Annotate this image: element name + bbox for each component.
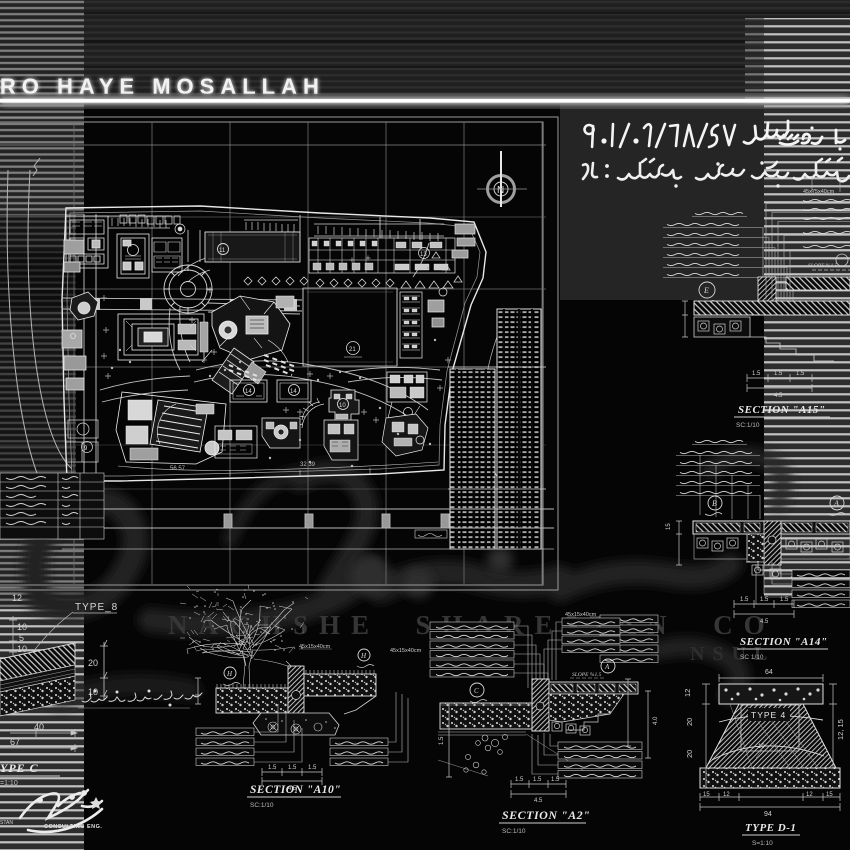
- svg-text:64: 64: [765, 669, 773, 676]
- svg-text:1.5: 1.5: [515, 777, 524, 783]
- svg-text:10: 10: [758, 744, 765, 750]
- svg-text:11: 11: [219, 248, 226, 254]
- svg-text:SC:1/10: SC:1/10: [250, 802, 274, 809]
- svg-text:15: 15: [703, 792, 710, 798]
- svg-text:H: H: [360, 652, 367, 660]
- svg-text:SC:1/10: SC:1/10: [502, 828, 526, 835]
- svg-text:20: 20: [685, 718, 694, 726]
- svg-text:TYPE D-1: TYPE D-1: [745, 822, 796, 834]
- svg-text:21: 21: [349, 347, 356, 353]
- svg-text:20: 20: [685, 750, 694, 758]
- svg-text:1.5: 1.5: [780, 597, 789, 603]
- svg-text:S=1:10: S=1:10: [752, 840, 773, 847]
- svg-text:15: 15: [666, 523, 672, 530]
- svg-text:CONSULTING ENG.: CONSULTING ENG.: [44, 824, 102, 830]
- svg-text:4.5: 4.5: [534, 798, 543, 804]
- svg-text:12: 12: [723, 792, 730, 798]
- svg-text:SLOPE %1.5: SLOPE %1.5: [572, 672, 602, 678]
- svg-text:YPE C: YPE C: [0, 761, 39, 775]
- svg-text:B: B: [712, 499, 717, 508]
- svg-text:4.5: 4.5: [760, 619, 769, 625]
- svg-text:1.5: 1.5: [752, 371, 761, 377]
- svg-text:10: 10: [17, 622, 27, 632]
- svg-text:10: 10: [17, 644, 27, 654]
- svg-text:94: 94: [764, 811, 772, 818]
- svg-text:14: 14: [245, 389, 252, 395]
- svg-text:4.5: 4.5: [774, 393, 783, 399]
- svg-text:14: 14: [290, 389, 297, 395]
- svg-text:10: 10: [339, 403, 346, 409]
- svg-text:1.5: 1.5: [774, 371, 783, 377]
- svg-text:TYPE 4: TYPE 4: [751, 710, 786, 720]
- svg-text:12: 12: [806, 792, 813, 798]
- svg-text:TYPE_8: TYPE_8: [75, 602, 118, 613]
- svg-text:13: 13: [420, 252, 427, 258]
- svg-text:1.5: 1.5: [796, 371, 805, 377]
- svg-text:40: 40: [34, 722, 44, 732]
- svg-text:1.5: 1.5: [308, 765, 317, 771]
- svg-text:10: 10: [88, 687, 98, 697]
- svg-text:SECTION "A15": SECTION "A15": [738, 404, 825, 416]
- svg-text:32 39: 32 39: [300, 462, 316, 468]
- svg-text:SLOPE %1.5: SLOPE %1.5: [808, 263, 838, 269]
- svg-text:1.5: 1.5: [760, 597, 769, 603]
- svg-text:STAN: STAN: [0, 820, 13, 826]
- svg-text:45x15x40cm: 45x15x40cm: [390, 648, 422, 654]
- svg-text:C: C: [474, 687, 479, 695]
- svg-text:A: A: [604, 663, 610, 671]
- svg-text:SECTION "A10": SECTION "A10": [250, 784, 341, 796]
- svg-text:56 57: 56 57: [170, 466, 186, 472]
- svg-text:5: 5: [19, 633, 24, 643]
- svg-text:1.5: 1.5: [551, 777, 560, 783]
- svg-text:1.5: 1.5: [533, 777, 542, 783]
- svg-text:SC:1/10: SC:1/10: [736, 422, 760, 429]
- svg-text:SECTION "A2": SECTION "A2": [502, 808, 590, 822]
- svg-text:45x15x40cm: 45x15x40cm: [565, 612, 597, 618]
- svg-text:12, 15: 12, 15: [836, 719, 845, 740]
- svg-text:1.5: 1.5: [288, 765, 297, 771]
- svg-text:HRO HAYE MOSALLAH: HRO HAYE MOSALLAH: [0, 74, 325, 99]
- svg-text:E: E: [703, 286, 709, 295]
- svg-text:SECTION "A14": SECTION "A14": [740, 636, 827, 648]
- svg-text:A: A: [833, 499, 839, 508]
- svg-text:15: 15: [826, 792, 833, 798]
- svg-text:N: N: [497, 185, 504, 196]
- svg-text:20: 20: [88, 658, 98, 668]
- svg-text:12: 12: [683, 689, 692, 697]
- svg-text:1.5: 1.5: [268, 765, 277, 771]
- svg-text:12: 12: [12, 593, 22, 603]
- svg-text:H: H: [226, 670, 233, 678]
- svg-text:1.5: 1.5: [740, 597, 749, 603]
- svg-text:67: 67: [10, 737, 20, 747]
- svg-text:=1:10: =1:10: [0, 780, 18, 787]
- svg-text:1.5: 1.5: [439, 736, 445, 745]
- svg-text:45x75x40cm: 45x75x40cm: [803, 189, 835, 195]
- svg-text:SC 1/10: SC 1/10: [740, 654, 764, 661]
- svg-text:4.0: 4.0: [653, 716, 659, 725]
